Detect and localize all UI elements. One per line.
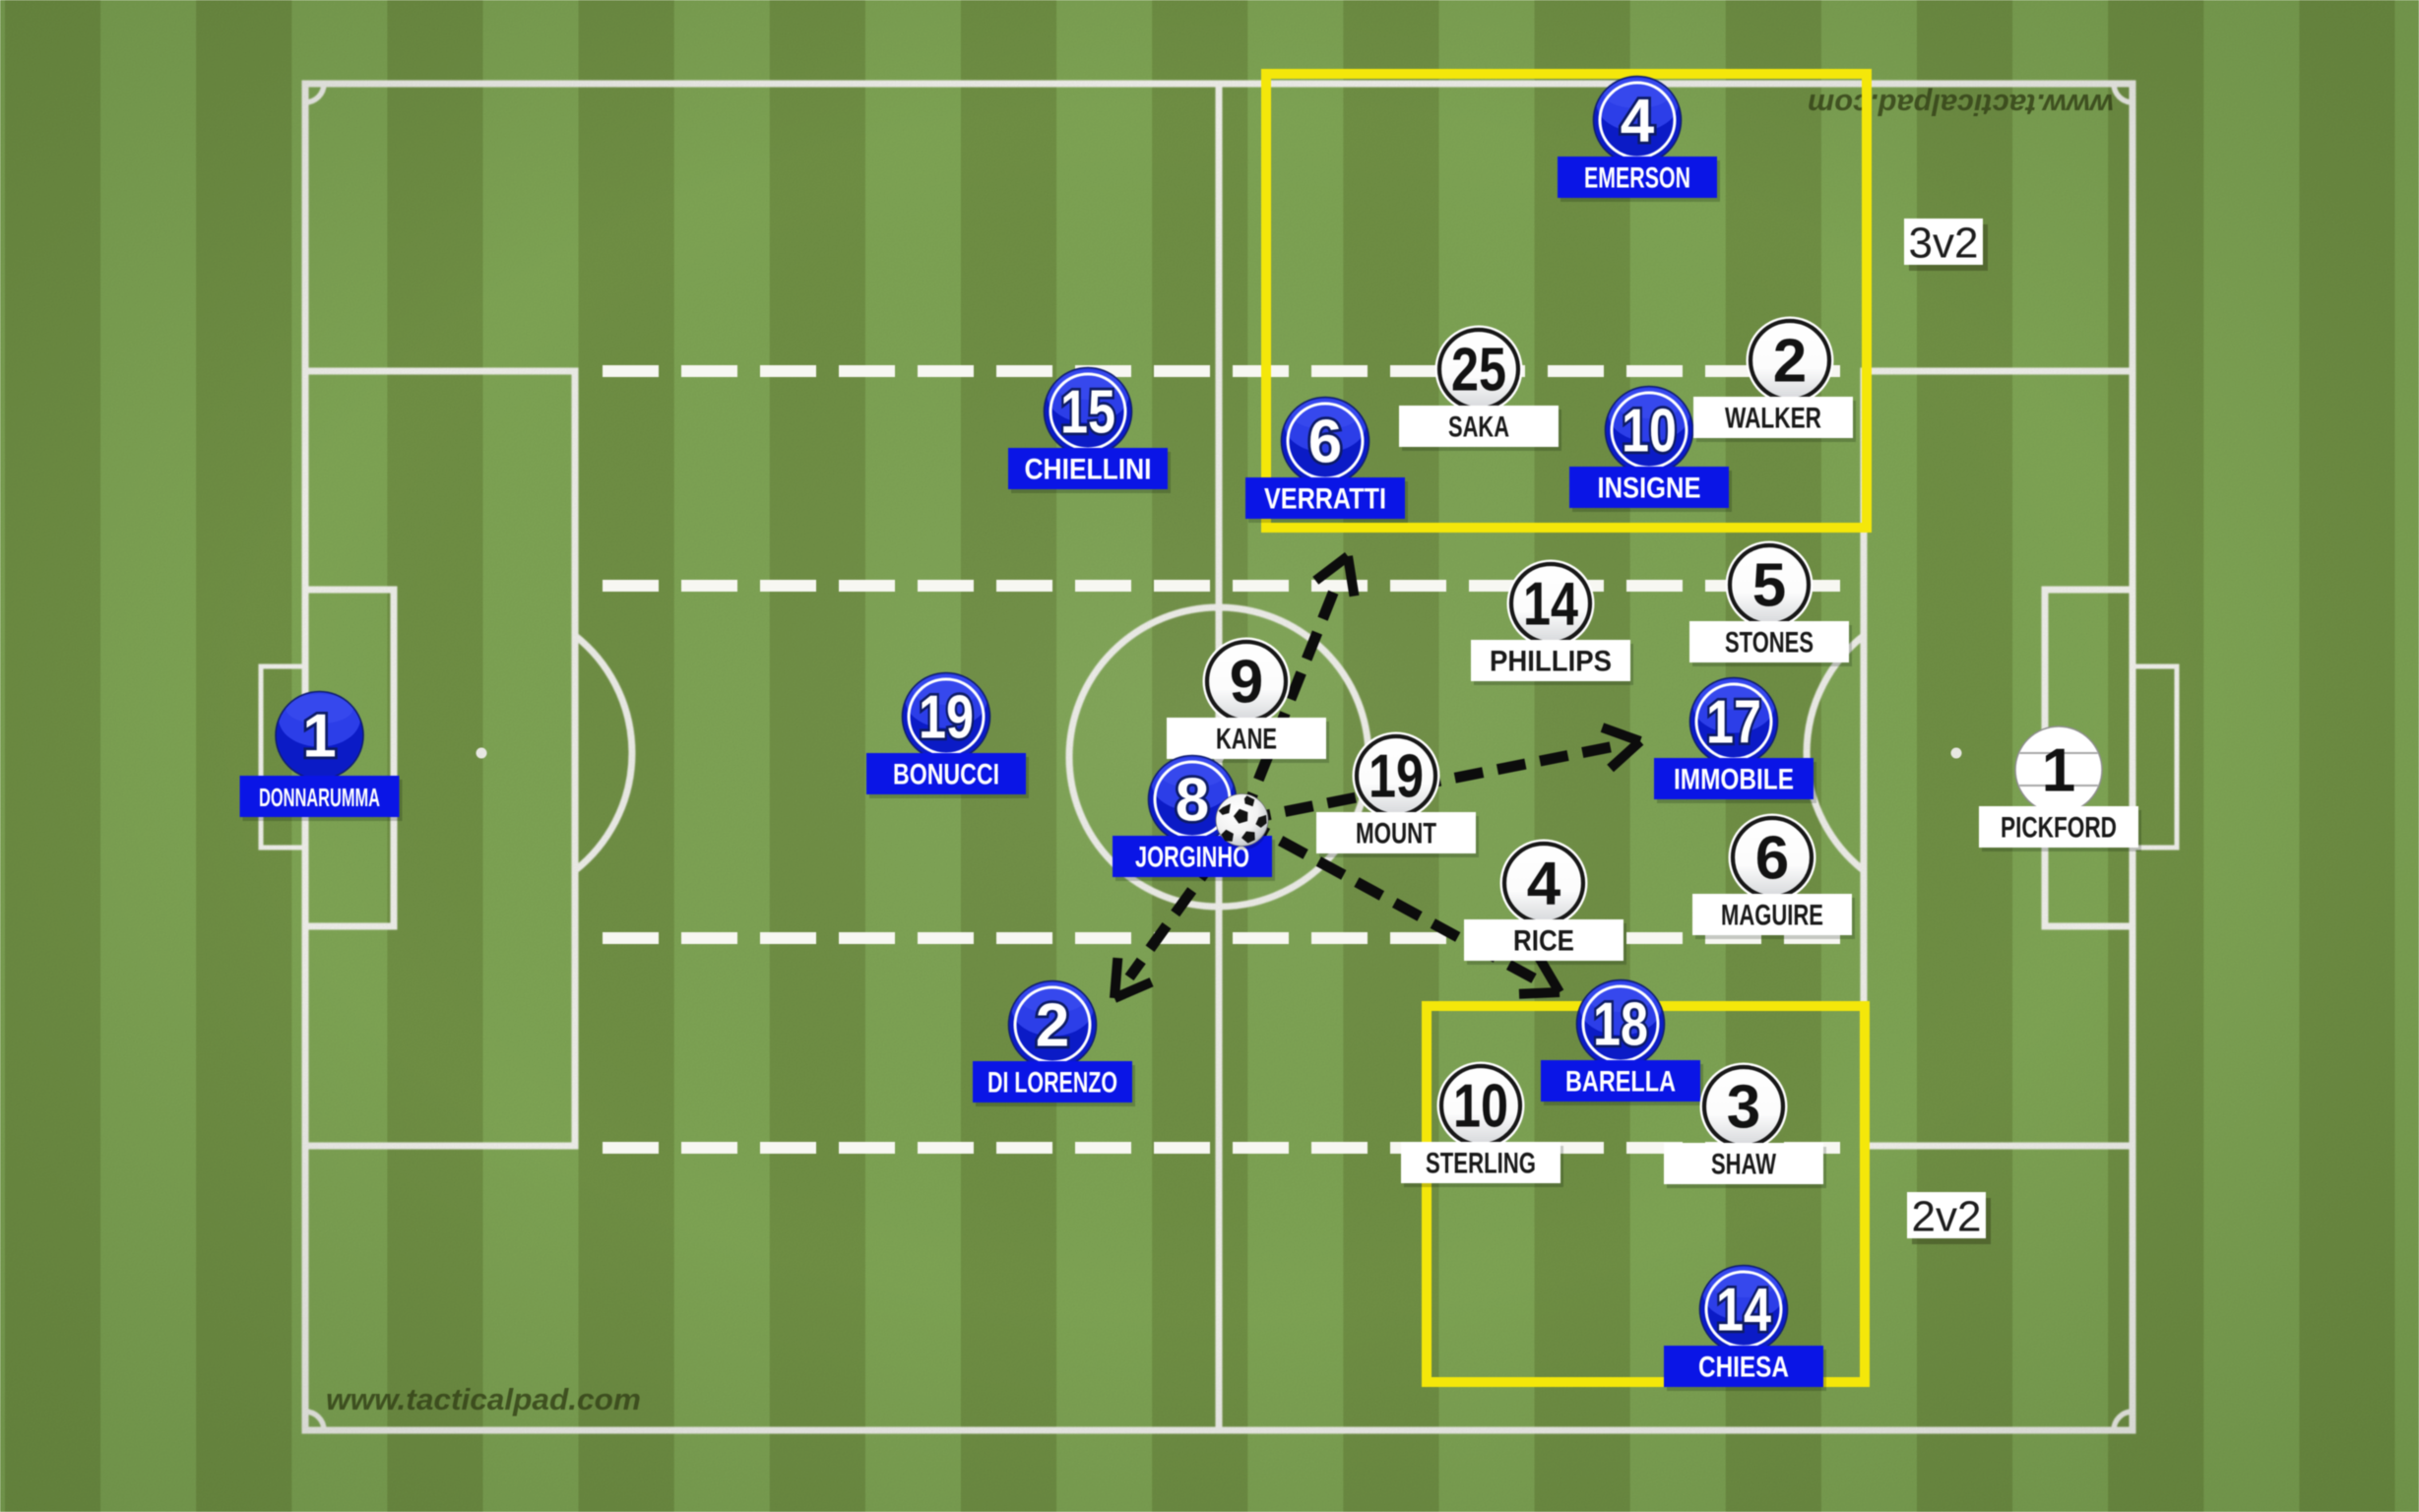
svg-text:KANE: KANE: [1216, 724, 1277, 756]
svg-text:CHIESA: CHIESA: [1698, 1352, 1789, 1384]
svg-text:2: 2: [1036, 992, 1069, 1060]
svg-text:STERLING: STERLING: [1426, 1148, 1536, 1180]
svg-text:VERRATTI: VERRATTI: [1264, 483, 1386, 516]
svg-text:19: 19: [919, 684, 974, 752]
svg-text:10: 10: [1622, 398, 1677, 466]
svg-text:4: 4: [1527, 850, 1561, 918]
svg-text:SAKA: SAKA: [1448, 411, 1509, 444]
svg-text:BONUCCI: BONUCCI: [893, 759, 999, 791]
svg-text:25: 25: [1451, 337, 1506, 405]
svg-text:CHIELLINI: CHIELLINI: [1025, 454, 1152, 486]
svg-text:5: 5: [1752, 552, 1786, 620]
svg-text:3v2: 3v2: [1909, 220, 1979, 268]
svg-text:14: 14: [1716, 1277, 1771, 1345]
svg-text:10: 10: [1453, 1073, 1508, 1141]
svg-text:4: 4: [1621, 88, 1655, 156]
svg-text:MAGUIRE: MAGUIRE: [1721, 900, 1823, 932]
svg-text:3: 3: [1727, 1074, 1760, 1142]
svg-text:19: 19: [1369, 743, 1424, 811]
svg-text:18: 18: [1593, 991, 1648, 1059]
svg-text:1: 1: [2042, 737, 2075, 805]
svg-text:SHAW: SHAW: [1711, 1149, 1777, 1181]
svg-text:6: 6: [1755, 825, 1789, 893]
svg-text:2v2: 2v2: [1912, 1193, 1982, 1241]
svg-text:6: 6: [1308, 409, 1342, 476]
svg-text:RICE: RICE: [1513, 925, 1574, 958]
svg-text:EMERSON: EMERSON: [1584, 162, 1690, 195]
svg-text:14: 14: [1523, 571, 1578, 639]
svg-text:DONNARUMMA: DONNARUMMA: [259, 783, 380, 812]
svg-text:9: 9: [1230, 649, 1263, 717]
svg-text:MOUNT: MOUNT: [1356, 818, 1436, 850]
svg-text:PICKFORD: PICKFORD: [2001, 812, 2117, 845]
svg-text:DI LORENZO: DI LORENZO: [987, 1067, 1117, 1100]
svg-text:8: 8: [1176, 767, 1209, 835]
svg-text:2: 2: [1773, 328, 1807, 396]
svg-text:1: 1: [302, 703, 336, 771]
svg-text:WALKER: WALKER: [1725, 403, 1821, 435]
svg-text:15: 15: [1060, 379, 1115, 447]
svg-text:IMMOBILE: IMMOBILE: [1674, 764, 1794, 796]
svg-text:PHILLIPS: PHILLIPS: [1490, 646, 1612, 678]
svg-text:BARELLA: BARELLA: [1565, 1066, 1676, 1099]
svg-text:17: 17: [1706, 689, 1761, 757]
svg-text:STONES: STONES: [1725, 627, 1814, 660]
svg-text:INSIGNE: INSIGNE: [1598, 472, 1701, 505]
